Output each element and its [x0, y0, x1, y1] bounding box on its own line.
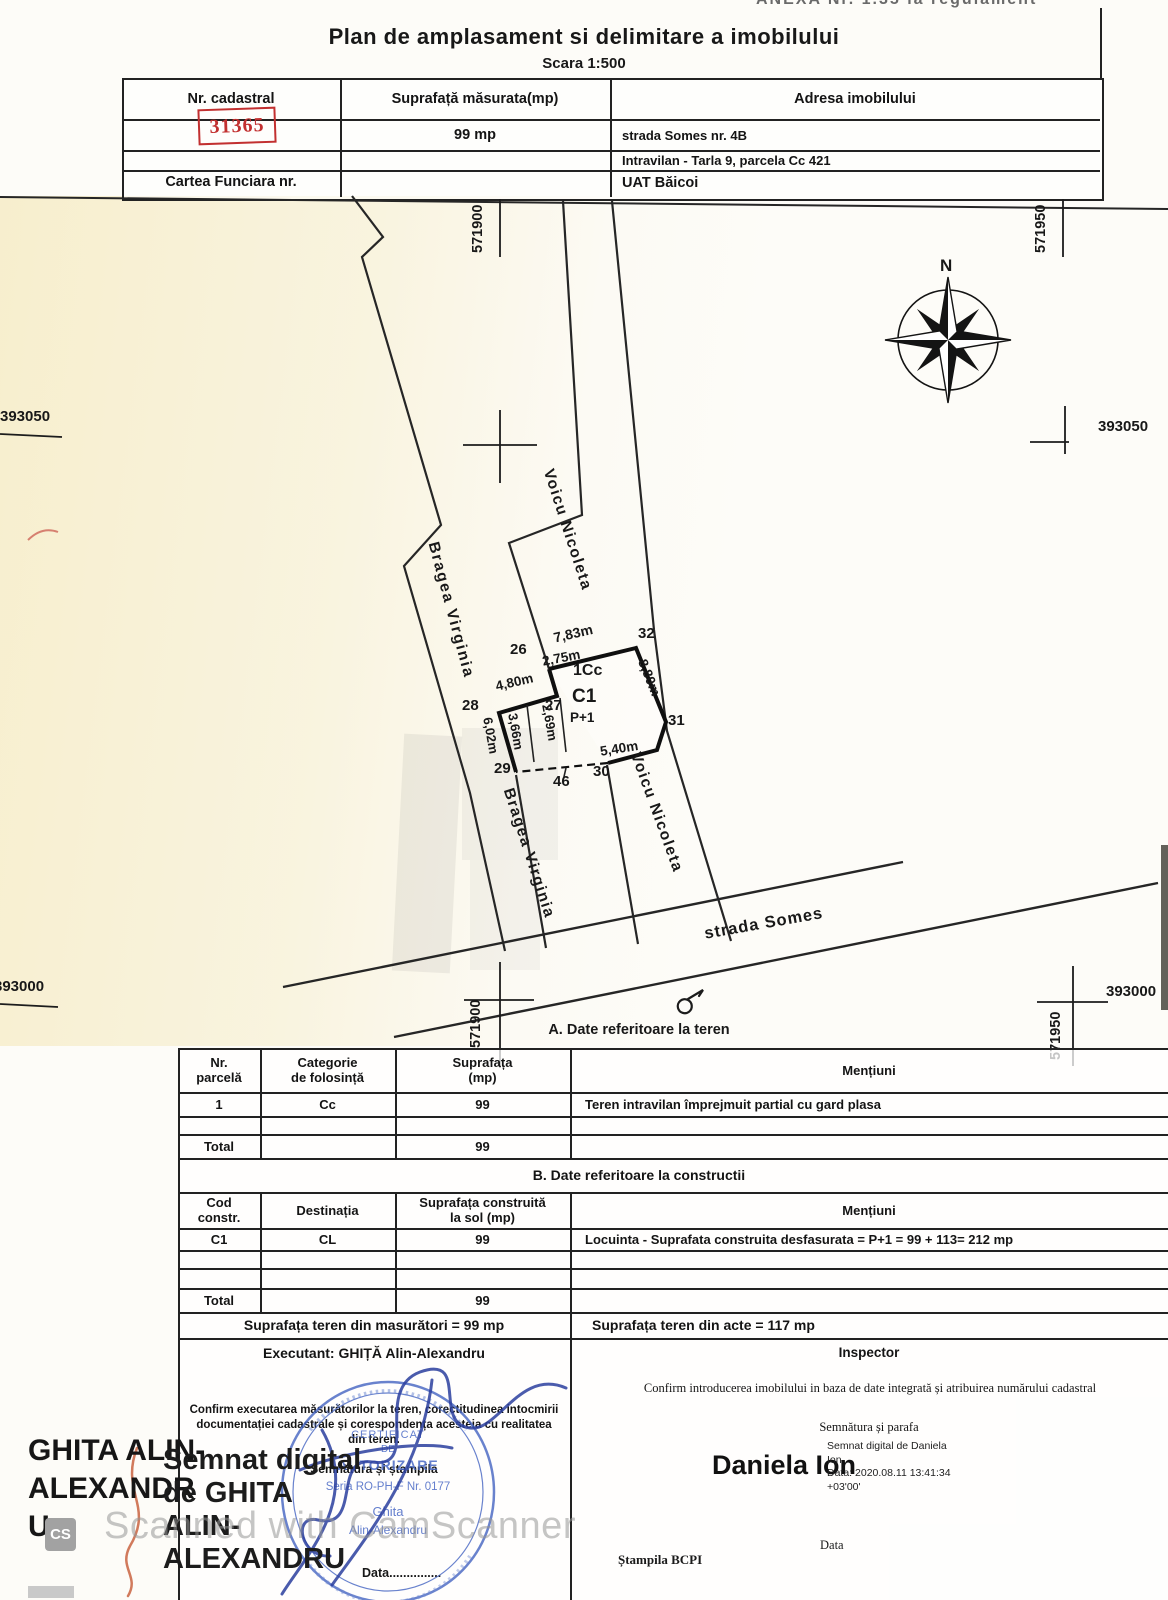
building-regime: P+1: [570, 710, 594, 725]
cadastral-number-stamp: 31365: [197, 107, 276, 146]
section-b-heading: B. Date referitoare la constructii: [178, 1158, 1100, 1192]
point-32: 32: [638, 625, 655, 642]
anexa-note: ANEXA Nr. 1.35 la regulament: [756, 0, 1037, 9]
inspector-signature-details: Semnat digital de Daniela Ion Data: 2020…: [827, 1440, 997, 1494]
point-31: 31: [668, 712, 685, 729]
north-label: N: [940, 256, 952, 276]
grid-label-393050-left: 393050: [0, 408, 50, 425]
table-a-total-value: 99: [395, 1134, 570, 1158]
data-left-label: Data...............: [362, 1566, 441, 1580]
table-b-row-suprafata: 99: [395, 1228, 570, 1250]
building-code: C1: [572, 686, 596, 708]
suprafata-masurata-label: Suprafață măsurata(mp): [340, 82, 610, 116]
table-b-row-destinatia: CL: [260, 1228, 395, 1250]
page-title: Plan de amplasament si delimitare a imob…: [0, 24, 1168, 50]
table-line: [178, 1134, 1168, 1136]
table-a-header-mentiuni: Mențiuni: [570, 1048, 1168, 1092]
scan-tint: [0, 196, 1168, 1046]
point-46: 46: [553, 773, 570, 790]
table-b-header-mentiuni: Mențiuni: [570, 1192, 1168, 1228]
table-line: [178, 1288, 1168, 1290]
table-b-header-destinatia: Destinația: [260, 1192, 395, 1228]
table-a-row-categorie: Cc: [260, 1092, 395, 1116]
table-a-row-mentiuni: Teren intravilan împrejmuit partial cu g…: [585, 1092, 1155, 1116]
grid-label-393050-right: 393050: [1098, 418, 1148, 435]
adresa-line1: strada Somes nr. 4B: [622, 121, 1092, 149]
camscanner-logo-text: CS: [50, 1526, 71, 1543]
table-line: [178, 1116, 1168, 1118]
point-26: 26: [510, 641, 527, 658]
point-29: 29: [494, 760, 511, 777]
section-a-heading: A. Date referitoare la teren: [178, 1022, 1100, 1038]
scanned-cadastral-plan: ANEXA Nr. 1.35 la regulament Plan de amp…: [0, 0, 1168, 1600]
table-b-header-suprafata: Suprafața construită la sol (mp): [395, 1192, 570, 1228]
table-b-total-label: Total: [178, 1288, 260, 1312]
grid-label-571900-top: 571900: [470, 205, 486, 253]
data-right-label: Data: [820, 1538, 844, 1553]
semnatura-parafa-label: Semnătura și parafa: [570, 1418, 1168, 1436]
scan-artifact: [392, 734, 462, 974]
grid-label-571950-top: 571950: [1033, 205, 1049, 253]
stampila-bcpi-label: Ștampila BCPI: [618, 1552, 702, 1568]
table-b-header-cod: Cod constr.: [178, 1192, 260, 1228]
parcel-code: 1Cc: [573, 662, 602, 680]
table-a-row-nr: 1: [178, 1092, 260, 1116]
table-a-row-suprafata: 99: [395, 1092, 570, 1116]
suprafata-masuratori: Suprafața teren din masurători = 99 mp: [178, 1312, 570, 1338]
table-b-row-mentiuni: Locuinta - Suprafata construita desfasur…: [585, 1228, 1155, 1250]
cadastral-number: 31365: [209, 114, 265, 139]
page-edge-line: [1100, 8, 1102, 78]
table-line: [178, 1250, 1168, 1252]
grid-label-393000-left: 393000: [0, 978, 44, 995]
page-scale: Scara 1:500: [0, 55, 1168, 72]
scan-artifact: [28, 1586, 74, 1598]
table-line: [178, 1268, 1168, 1270]
scan-edge-shadow: [1161, 845, 1168, 1010]
uat-value: UAT Băicoi: [622, 170, 1092, 196]
point-30: 30: [593, 763, 610, 780]
grid-label-393000-right: 393000: [1106, 983, 1156, 1000]
table-b-total-value: 99: [395, 1288, 570, 1312]
table-line: [178, 1338, 1168, 1340]
point-28: 28: [462, 697, 479, 714]
suprafata-masurata-value: 99 mp: [340, 121, 610, 149]
cartea-funciara-label: Cartea Funciara nr.: [122, 168, 340, 196]
adresa-line2: Intravilan - Tarla 9, parcela Cc 421: [622, 150, 1092, 170]
table-a-header-suprafata: Suprafața (mp): [395, 1048, 570, 1092]
table-a-total-label: Total: [178, 1134, 260, 1158]
table-b-row-cod: C1: [178, 1228, 260, 1250]
camscanner-watermark: Scanned with CamScanner: [104, 1505, 576, 1548]
inspector-label: Inspector: [570, 1342, 1168, 1362]
confirm-right-text: Confirm introducerea imobilului in baza …: [585, 1378, 1155, 1398]
adresa-label: Adresa imobilului: [610, 82, 1100, 116]
executant-line: Executant: GHIȚĂ Alin-Alexandru: [178, 1342, 570, 1364]
suprafata-acte: Suprafața teren din acte = 117 mp: [592, 1312, 1152, 1338]
table-a-header-nr: Nr. parcelă: [178, 1048, 260, 1092]
table-a-header-categorie: Categorie de folosință: [260, 1048, 395, 1092]
camscanner-logo: CS: [45, 1518, 76, 1551]
